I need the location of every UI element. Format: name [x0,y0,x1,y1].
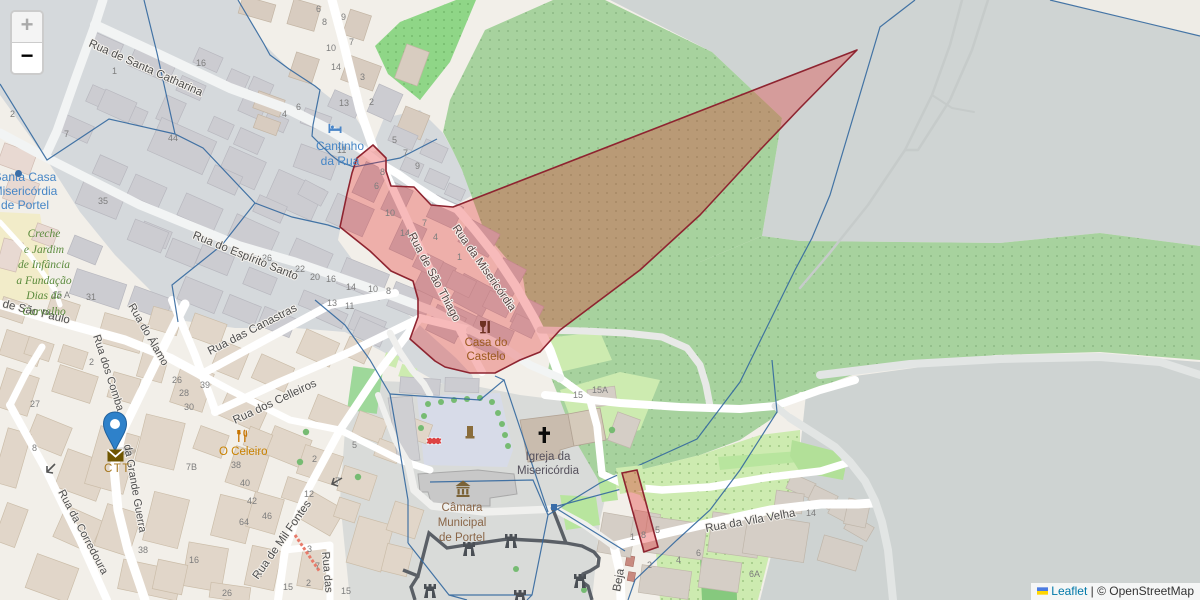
svg-text:4: 4 [433,232,438,242]
svg-text:4: 4 [282,109,287,119]
svg-text:30: 30 [184,402,194,412]
svg-text:5: 5 [352,440,357,450]
svg-text:2: 2 [647,560,652,570]
svg-text:7: 7 [422,218,427,228]
svg-text:8: 8 [641,530,646,540]
svg-text:35: 35 [98,196,108,206]
svg-text:6: 6 [374,181,379,191]
svg-text:16: 16 [196,58,206,68]
svg-text:11: 11 [345,301,354,311]
svg-text:38: 38 [138,545,148,555]
svg-text:39: 39 [200,380,210,390]
svg-text:20: 20 [310,272,320,282]
svg-text:16: 16 [189,555,199,565]
svg-text:2: 2 [89,357,94,367]
svg-text:4: 4 [676,555,681,565]
svg-text:7: 7 [64,129,69,139]
svg-text:26: 26 [172,375,182,385]
svg-text:42: 42 [247,496,257,506]
svg-text:2: 2 [312,454,317,464]
svg-text:44: 44 [168,133,178,143]
svg-text:7: 7 [403,148,408,158]
svg-text:3: 3 [360,72,365,82]
svg-text:15: 15 [573,390,583,400]
svg-text:2: 2 [306,578,311,588]
svg-text:5: 5 [392,135,397,145]
svg-text:9: 9 [341,12,346,22]
svg-text:13: 13 [327,298,337,308]
svg-text:14: 14 [346,282,356,292]
svg-text:26: 26 [222,588,232,598]
svg-text:3: 3 [307,544,312,554]
svg-text:13: 13 [339,98,349,108]
svg-text:10: 10 [385,208,395,218]
svg-text:6: 6 [316,4,321,14]
svg-text:7: 7 [315,561,320,571]
svg-text:16: 16 [326,274,336,284]
svg-text:10: 10 [326,43,336,53]
svg-text:6: 6 [296,102,301,112]
svg-text:6A: 6A [749,569,760,579]
svg-text:8: 8 [322,17,327,27]
svg-text:6: 6 [696,548,701,558]
svg-text:7B: 7B [186,462,197,472]
svg-text:1: 1 [112,66,117,76]
svg-text:2: 2 [369,97,374,107]
svg-text:14: 14 [331,62,341,72]
svg-text:7: 7 [349,37,354,47]
svg-text:15: 15 [283,582,293,592]
svg-text:8: 8 [386,286,391,296]
svg-text:64: 64 [239,517,249,527]
svg-text:15A: 15A [592,385,608,395]
svg-text:2: 2 [10,109,15,119]
svg-text:15: 15 [341,586,351,596]
svg-text:9: 9 [415,161,420,171]
svg-text:46: 46 [262,511,272,521]
svg-text:38: 38 [231,460,241,470]
svg-text:8: 8 [380,167,385,177]
svg-text:7: 7 [335,476,340,486]
svg-text:12: 12 [304,489,314,499]
svg-text:27: 27 [30,399,40,409]
svg-text:8: 8 [32,443,37,453]
svg-text:1: 1 [457,252,462,262]
svg-text:28: 28 [179,388,189,398]
svg-text:1: 1 [630,532,635,542]
svg-text:10: 10 [368,284,378,294]
svg-text:40: 40 [240,478,250,488]
svg-text:5: 5 [655,525,660,535]
svg-text:14: 14 [806,508,816,518]
